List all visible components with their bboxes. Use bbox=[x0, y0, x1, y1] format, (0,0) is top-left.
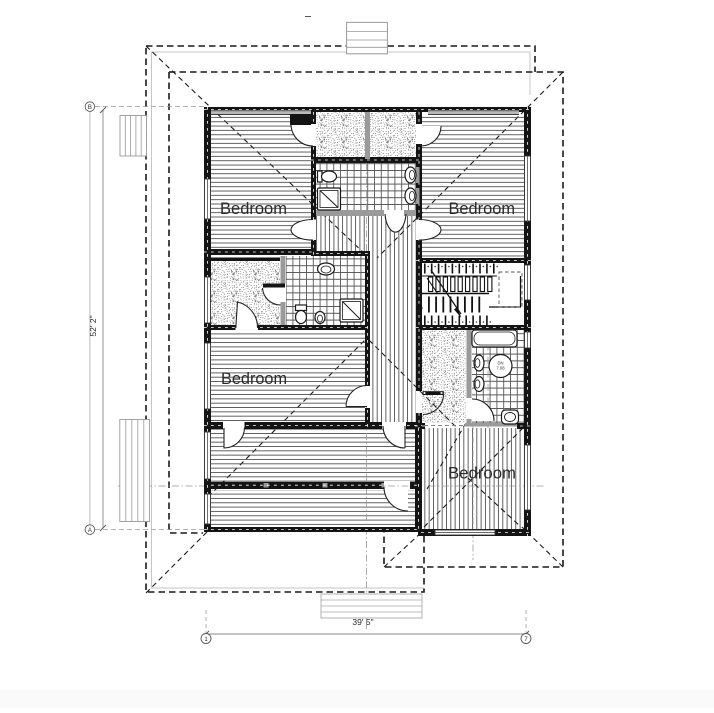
svg-text:7.08: 7.08 bbox=[496, 366, 505, 371]
svg-text:39' 5": 39' 5" bbox=[352, 617, 373, 627]
svg-text:Bedroom: Bedroom bbox=[449, 200, 516, 218]
svg-text:A: A bbox=[88, 528, 92, 534]
svg-text:Bedroom: Bedroom bbox=[221, 370, 287, 388]
svg-text:B: B bbox=[88, 105, 92, 111]
svg-text:Bedroom: Bedroom bbox=[220, 200, 287, 218]
svg-text:52' 2": 52' 2" bbox=[88, 315, 98, 336]
svg-text:Bedroom: Bedroom bbox=[448, 465, 516, 483]
